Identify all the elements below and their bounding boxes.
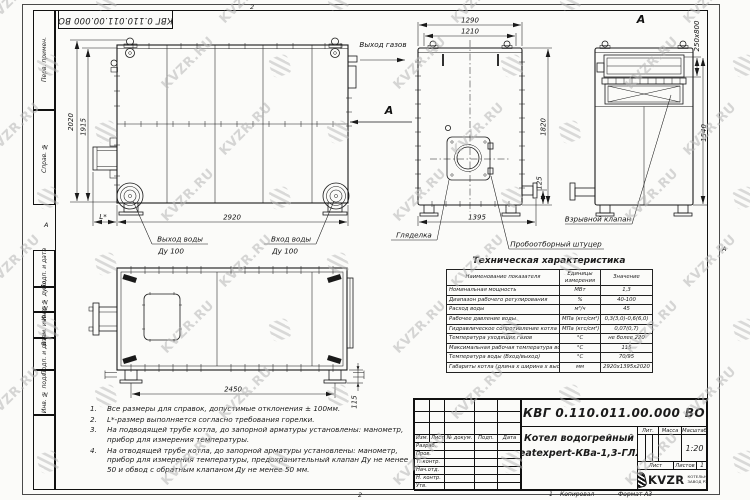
tech-table-cell: Номинальная мощность [447, 286, 560, 296]
signature-row-label: Т. контр. [415, 458, 445, 466]
table-row: Расход водым³/ч45 [447, 305, 653, 315]
revision-header: Подп. [475, 434, 498, 442]
scale-value: 1:20 [681, 434, 708, 462]
footer-kopiroval: Копировал [560, 491, 594, 498]
dim-2920: 2920 [223, 214, 241, 222]
product-name-line1: Котел водогрейный [524, 432, 634, 447]
note-number: 3. [90, 425, 107, 444]
table-row: Температура воды (Вход/выход)°С70/95 [447, 353, 653, 363]
technical-characteristics: Техническая характеристика Наименование … [446, 256, 652, 373]
tech-table-header: Наименование показателя [447, 270, 560, 286]
dim-1820: 1820 [540, 118, 548, 136]
tech-table-cell: 0,07(0,7) [601, 324, 653, 334]
tech-table-cell: мм [560, 363, 601, 373]
tech-table-cell: МПа (кгс/см²) [560, 315, 601, 325]
view-side-elevation: 2020 1915 2920 L* Выход газов А Выход во… [67, 38, 412, 256]
revision-header: № докум. [445, 434, 475, 442]
product-name-line2: Heatexpert-КВа-1,3-ГЛЖ [520, 447, 638, 462]
title-block-doc-number: КВГ 0.110.011.00.000 ВО [520, 399, 708, 427]
dim-250x800: 250x800 [693, 20, 701, 51]
note-text: На подводящей трубе котла, до запорной а… [107, 425, 412, 444]
revision-table: Изм.Лист№ докум.Подп.ДатаРазраб.Пров.Т. … [414, 399, 522, 491]
tech-table-cell: 115 [601, 343, 653, 353]
signature-row: Нач.отд. [415, 467, 522, 475]
tech-table-header: Единицы измерения [560, 270, 601, 286]
table-row: Максимальная рабочая температура воды°С1… [447, 343, 653, 353]
signature-row: Разраб. [415, 442, 522, 450]
signature-row-label: Нач.отд. [415, 467, 445, 475]
table-row: Гидравлическое сопротивление котлаМПа (к… [447, 324, 653, 334]
kvzr-logo-cell: KVZR КОТЕЛЬНЫЙ ЗАВОД РЭП [637, 469, 708, 491]
view-rear-a: А 250x800 154 [565, 13, 708, 224]
tech-table: Наименование показателяЕдиницы измерения… [446, 269, 653, 373]
dim-l-star: L* [99, 213, 107, 221]
label-sight-glass: Гляделка [396, 231, 432, 240]
kvzr-logo-icon [637, 472, 646, 488]
label-water-out: Выход воды [157, 235, 203, 244]
tech-table-cell: м³/ч [560, 305, 601, 315]
signature-row: Н. контр. [415, 475, 522, 483]
dim-1395: 1395 [468, 214, 486, 222]
tech-table-cell: % [560, 295, 601, 305]
footer-num: 1 [549, 491, 553, 498]
tech-table-cell: не более 220 [601, 334, 653, 344]
revision-header: Дата [498, 434, 522, 442]
note-item: 2.L*-размер выполняется согласно требова… [90, 415, 412, 425]
kvzr-logo-subtitle: КОТЕЛЬНЫЙ ЗАВОД РЭП [688, 475, 708, 485]
revision-header: Лист [430, 434, 445, 442]
footer-format: Формат А3 [618, 491, 652, 498]
tech-table-cell: 1,3 [601, 286, 653, 296]
tech-table-cell: 2920х1395х2020 [601, 363, 653, 373]
note-number: 2. [90, 415, 107, 425]
revision-header: Изм. [415, 434, 430, 442]
tech-table-cell: Температура воды (Вход/выход) [447, 353, 560, 363]
note-item: 1.Все размеры для справок, допустимые от… [90, 404, 412, 414]
signature-row-label: Утв. [415, 483, 445, 491]
signature-row: Утв. [415, 483, 522, 491]
tech-table-cell: Максимальная рабочая температура воды [447, 343, 560, 353]
note-text: Все размеры для справок, допустимые откл… [107, 404, 412, 414]
tech-table-header: Значение [601, 270, 653, 286]
view-plan: 2450 115 [89, 266, 364, 409]
tech-table-cell: °С [560, 343, 601, 353]
title-block: Изм.Лист№ докум.Подп.ДатаРазраб.Пров.Т. … [413, 398, 707, 490]
dim-1290: 1290 [461, 17, 479, 25]
label-view-a: А [636, 13, 646, 26]
tech-table-cell: 40-100 [601, 295, 653, 305]
note-item: 3.На подводящей трубе котла, до запорной… [90, 425, 412, 444]
note-text: L*-размер выполняется согласно требовани… [107, 415, 412, 425]
tech-table-cell: 45 [601, 305, 653, 315]
table-row: Номинальная мощностьМВт1,3 [447, 286, 653, 296]
tech-table-cell: МВт [560, 286, 601, 296]
mass-cell [658, 434, 682, 462]
tech-table-cell: 0,3(3,0)-0,6(6,0) [601, 315, 653, 325]
dim-125: 125 [536, 176, 544, 190]
label-gas-outlet: Выход газов [359, 40, 406, 49]
tech-table-cell: Гидравлическое сопротивление котла [447, 324, 560, 334]
dim-1210: 1210 [461, 28, 479, 36]
label-water-out-dn: Ду 100 [157, 247, 184, 256]
tech-table-cell: Диапазон рабочего регулирования [447, 295, 560, 305]
label-water-in: Вход воды [271, 235, 311, 244]
tech-table-cell: Габариты котла (длина х ширина х высота) [447, 363, 560, 373]
tech-table-cell: Температура уходящих газов [447, 334, 560, 344]
signature-row: Пров. [415, 450, 522, 458]
kvzr-logo-text: KVZR [648, 473, 685, 487]
note-number: 1. [90, 404, 107, 414]
signature-row-label: Разраб. [415, 442, 445, 450]
table-row: Температура уходящих газов°Сне более 220 [447, 334, 653, 344]
tech-table-cell: °С [560, 334, 601, 344]
tech-table-cell: °С [560, 353, 601, 363]
table-row: Рабочее давление водыМПа (кгс/см²)0,3(3,… [447, 315, 653, 325]
dim-1915: 1915 [80, 118, 88, 136]
notes-list: 1.Все размеры для справок, допустимые от… [90, 404, 412, 475]
tech-table-cell: 70/95 [601, 353, 653, 363]
note-item: 4.На отводящей трубе котла, до запорной … [90, 446, 412, 475]
title-block-product-name: Котел водогрейный Heatexpert-КВа-1,3-ГЛЖ [520, 426, 638, 491]
signature-row-label: Пров. [415, 450, 445, 458]
label-sampling-fitting: Пробоотборный штуцер [510, 240, 602, 249]
dim-2020: 2020 [67, 113, 75, 131]
label-section-a: А [384, 104, 394, 117]
signature-row-label: Н. контр. [415, 475, 445, 483]
table-row: Диапазон рабочего регулирования%40-100 [447, 295, 653, 305]
tech-table-cell: Рабочее давление воды [447, 315, 560, 325]
dim-2450: 2450 [224, 386, 242, 394]
tech-table-cell: МПа (кгс/см²) [560, 324, 601, 334]
note-text: На отводящей трубе котла, до запорной ар… [107, 446, 412, 475]
lit-cells [637, 434, 659, 462]
tech-table-cell: Расход воды [447, 305, 560, 315]
dim-1540: 1540 [700, 124, 708, 142]
note-number: 4. [90, 446, 107, 475]
label-water-in-dn: Ду 100 [271, 247, 298, 256]
table-row: Габариты котла (длина х ширина х высота)… [447, 363, 653, 373]
label-explosion-valve: Взрывной клапан [565, 215, 632, 224]
tech-table-title: Техническая характеристика [446, 256, 652, 266]
drawing-sheet: КВГ 0.110.011.00.000 ВО Перв. примен.Спр… [0, 0, 750, 500]
signature-row: Т. контр. [415, 458, 522, 466]
